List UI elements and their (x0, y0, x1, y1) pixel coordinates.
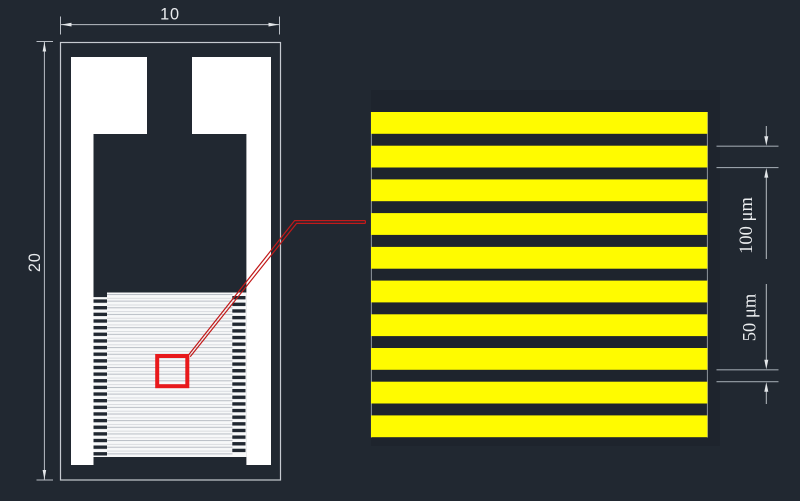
svg-text:10: 10 (160, 6, 180, 24)
svg-text:50 μm: 50 μm (740, 293, 760, 341)
svg-text:100 μm: 100 μm (737, 197, 757, 254)
svg-text:20: 20 (26, 252, 44, 272)
